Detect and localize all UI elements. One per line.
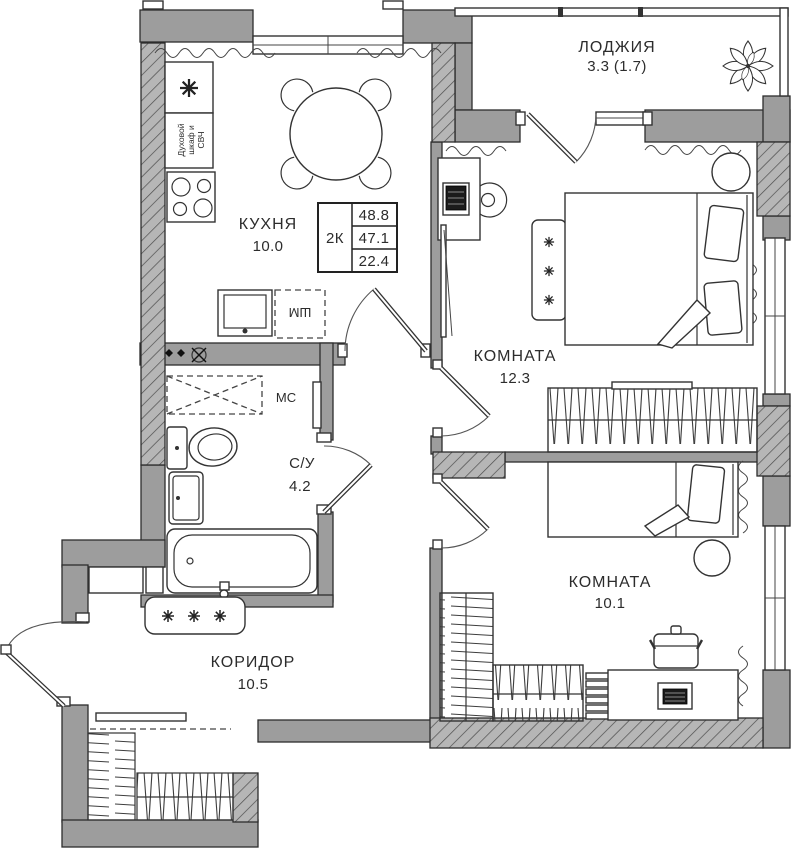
fridge bbox=[165, 62, 213, 113]
double-bed bbox=[565, 193, 753, 348]
vent-mark bbox=[383, 1, 403, 9]
area-kitchen: 22.4 bbox=[359, 253, 390, 270]
toilet bbox=[167, 426, 239, 469]
oven-label-line3: СВЧ bbox=[196, 131, 206, 148]
curtain-squiggle bbox=[739, 646, 748, 706]
bathroom-label: С/У bbox=[289, 455, 315, 472]
room-large-window bbox=[765, 238, 785, 394]
bathroom-area: 4.2 bbox=[289, 478, 311, 495]
floor-plan-drawing: Духовой шкаф и СВЧ ШМ bbox=[0, 0, 800, 849]
room-small-label: КОМНАТА bbox=[569, 574, 652, 591]
shelf-unit bbox=[586, 673, 610, 719]
room-small: КОМНАТА 10.1 bbox=[440, 461, 748, 721]
pot bbox=[650, 626, 702, 668]
oven-microwave-cabinet: Духовой шкаф и СВЧ bbox=[165, 113, 213, 168]
room-large-door bbox=[441, 368, 489, 436]
wardrobe bbox=[548, 382, 757, 452]
room-large: КОМНАТА 12.3 bbox=[438, 146, 757, 453]
room-small-area: 10.1 bbox=[595, 595, 626, 612]
single-bed bbox=[548, 462, 738, 537]
pillow bbox=[687, 464, 725, 523]
room-large-label: КОМНАТА bbox=[474, 348, 557, 365]
shoe-cabinet bbox=[145, 597, 245, 634]
washing-machine-label: ШМ bbox=[289, 305, 312, 320]
desk-chair bbox=[480, 183, 507, 217]
washbasin bbox=[169, 472, 203, 524]
round-rug bbox=[694, 540, 730, 576]
floor-plan: Духовой шкаф и СВЧ ШМ bbox=[0, 0, 800, 849]
area-total: 48.8 bbox=[359, 207, 390, 224]
pillow bbox=[704, 205, 744, 262]
room-large-area: 12.3 bbox=[500, 370, 531, 387]
hallway-label: КОРИДОР bbox=[211, 654, 296, 671]
stove bbox=[167, 172, 215, 222]
room-small-window bbox=[765, 526, 785, 670]
loggia-area: 3.3 (1.7) bbox=[587, 58, 646, 75]
desk bbox=[608, 670, 738, 720]
oven-label-line1: Духовой bbox=[176, 123, 186, 156]
apartment-info-table: 2К 48.8 47.1 22.4 bbox=[318, 203, 397, 272]
curtain-squiggle bbox=[446, 147, 506, 156]
tall-wardrobe bbox=[440, 593, 493, 721]
area-living: 47.1 bbox=[359, 230, 390, 247]
cabinet bbox=[89, 567, 143, 593]
future-appliance-zone bbox=[167, 376, 262, 414]
loggia-label: ЛОДЖИЯ bbox=[578, 39, 655, 56]
kitchen-sink bbox=[218, 290, 272, 336]
plant-icon bbox=[723, 41, 773, 91]
balcony-door-window bbox=[596, 112, 645, 125]
storage-label: МС bbox=[276, 390, 296, 405]
kitchen-door bbox=[345, 289, 426, 351]
wall-cabinet bbox=[313, 382, 321, 428]
kitchen-window bbox=[253, 36, 403, 54]
cabinet bbox=[146, 567, 163, 593]
loggia: ЛОДЖИЯ 3.3 (1.7) bbox=[578, 39, 773, 91]
balcony-door bbox=[528, 114, 596, 162]
entrance-door bbox=[1, 622, 86, 706]
round-stool bbox=[712, 153, 750, 191]
hallway-area: 10.5 bbox=[238, 676, 269, 693]
bathroom-door bbox=[324, 446, 371, 512]
low-wardrobe bbox=[493, 665, 583, 721]
pillow bbox=[704, 281, 742, 336]
dining-table bbox=[281, 79, 391, 189]
washing-machine-zone: ШМ bbox=[275, 290, 325, 338]
oven-label-line2: шкаф и bbox=[186, 125, 196, 155]
room-small-door bbox=[441, 482, 488, 548]
curtain-squiggle bbox=[739, 461, 748, 533]
built-in-closet bbox=[88, 713, 233, 820]
bathroom: МС С/У 4.2 bbox=[167, 376, 321, 598]
dresser bbox=[532, 220, 566, 320]
kitchen-label: КУХНЯ bbox=[239, 216, 297, 233]
vent-mark bbox=[143, 1, 163, 9]
bathtub bbox=[167, 529, 317, 598]
kitchen-area: 10.0 bbox=[253, 238, 284, 255]
apartment-type: 2К bbox=[326, 230, 344, 247]
